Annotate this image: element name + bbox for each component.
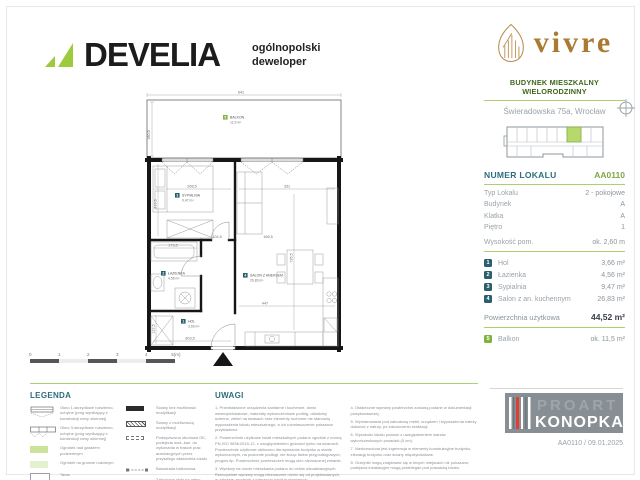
wall-modifiable-icon [126, 420, 152, 428]
label-lazienka: 2 ŁAZIENKA 4,56 m² [161, 271, 186, 280]
room-row: 3 Sypialnia 9,47 m² [484, 283, 625, 291]
svg-text:1: 1 [182, 320, 184, 324]
legend-item: Podwyższona obudowa GK, podejścia wod.-k… [126, 435, 212, 462]
note-item: 7. Niedozwolona jest ingerencja w elemen… [351, 446, 479, 457]
key-plan [503, 122, 607, 162]
dim-bedroom-width: 268,5 [187, 184, 197, 188]
legend-item: Taras [30, 472, 116, 480]
balcony-outline [147, 100, 341, 158]
green-divider [484, 100, 625, 101]
room-row: 4 Salon z an. kuchennym 26,83 m² [484, 295, 625, 303]
legend-column-left: Okno 1-skrzydłowe rozwierno-uchylne (pró… [30, 405, 116, 480]
proart-konopka-stamp: PROART KONOPKA [505, 393, 623, 433]
legend-item: Ściany z możliwością modyfikacji [126, 420, 212, 431]
label-balkon: 5 BALKON 11,5 m² [223, 115, 245, 124]
room-row: 2 Łazienka 4,56 m² [484, 271, 625, 279]
notes-column-1: 1. Przedstawione urządzenia sanitarne i … [215, 405, 343, 480]
note-item: 5. Wymiarowania pod zabudowę mebli, urzą… [351, 419, 479, 430]
address: Świeradowska 75a, Wrocław [484, 107, 625, 116]
svg-text:26,83 m²: 26,83 m² [250, 278, 264, 282]
garden-over-garage-swatch [30, 445, 56, 453]
room-number-badge: 4 [484, 295, 492, 303]
green-divider [484, 327, 625, 328]
tagline-line2: deweloper [252, 56, 320, 70]
balcony-number-badge: 5 [484, 335, 492, 343]
note-item: 8. Grzejniki mogą znajdować się w innych… [351, 460, 479, 471]
balustrade-icon [126, 466, 152, 473]
svg-text:SYPIALNIA: SYPIALNIA [182, 194, 201, 198]
green-divider [484, 184, 625, 185]
notes-column-2: 4. Ostateczne wymiary powierzchni zostan… [351, 405, 479, 480]
stamp-bottom-text: KONOPKA [535, 414, 623, 431]
legend-item: Zabudowa płyty na pełną wysokość [126, 477, 212, 480]
legend-item: Okno 3-skrzydłowe rozwierno-uchylne (pró… [30, 425, 116, 441]
stamp-logo: PROART KONOPKA [505, 393, 623, 433]
svg-text:9,47 m²: 9,47 m² [182, 198, 194, 202]
dim-balcony-depth: 180,5 [147, 130, 151, 140]
attr-row: Budynek A [484, 201, 625, 208]
panel-divider [490, 388, 623, 389]
legend-item: Okno 1-skrzydłowe rozwierno-uchylne (pró… [30, 405, 116, 421]
legend-column-right: Ściany bez możliwości modyfikacji Ściany… [126, 405, 212, 480]
attr-row: Piętro 1 [484, 224, 625, 231]
vivre-logo: vivre [484, 14, 625, 72]
dim-salon-height: 735,5 [290, 253, 294, 263]
floor-plan: 641 180,5 268,5 319,5 331 104,5 166,5 17… [105, 88, 355, 393]
svg-text:BALKON: BALKON [230, 116, 245, 120]
scale-tick: 4 [145, 352, 148, 357]
svg-text:2: 2 [162, 272, 164, 276]
dim-bedroom-height: 319,5 [154, 199, 158, 209]
svg-text:SALON Z ANEKSEM: SALON Z ANEKSEM [250, 274, 283, 278]
tagline-line1: ogólnopolski [252, 42, 320, 56]
interior-walls [149, 160, 235, 313]
dim-mid-left: 104,5 [212, 235, 222, 239]
develia-logo-icon [44, 41, 74, 69]
full-height-panel-icon [126, 477, 152, 480]
dim-mid-right: 166,5 [263, 235, 273, 239]
developer-tagline: ogólnopolski deweloper [252, 42, 320, 70]
vivre-wordmark: vivre [534, 26, 613, 60]
svg-text:ŁAZIENKA: ŁAZIENKA [168, 272, 186, 276]
attr-row: Klatka A [484, 213, 625, 220]
dimensions: 641 180,5 268,5 319,5 331 104,5 166,5 17… [147, 91, 341, 344]
dim-bath-width: 173,5 [168, 244, 178, 248]
svg-text:3: 3 [176, 194, 178, 198]
compass-icon [616, 98, 636, 118]
scale-tick: 1 [58, 352, 61, 357]
notes-section: UWAGI 1. Przedstawione urządzenia sanita… [215, 391, 478, 480]
attr-row: Typ Lokalu 2 - pokojowe [484, 190, 625, 197]
legend-item: Balustrada balkonowa [126, 466, 212, 473]
footer-divider [30, 383, 478, 384]
dim-salon-inner: 447 [262, 301, 268, 305]
floorplan-sheet: DEVELIA ogólnopolski deweloper [0, 0, 640, 480]
legend-section: LEGENDA Okno 1-skrzydłowe rozwierno-uchy… [30, 391, 212, 480]
window-single-icon [30, 405, 56, 417]
dim-balcony-width: 641 [238, 91, 244, 95]
vivre-logo-icon [496, 21, 526, 65]
develia-wordmark: DEVELIA [84, 36, 220, 74]
svg-text:4,56 m²: 4,56 m² [168, 276, 180, 280]
room-row: 1 Hol 3,66 m² [484, 259, 625, 267]
legend-title: LEGENDA [30, 391, 212, 400]
unit-number-label: NUMER LOKALU [484, 170, 557, 180]
label-sypialnia: 3 SYPIALNIA 9,47 m² [175, 193, 201, 202]
note-item: 3. Wymiary na rzucie mieszkania podano d… [215, 466, 343, 480]
stamp-top-text: PROART [537, 397, 618, 414]
dim-hol-height: 122,5 [152, 324, 156, 334]
room-number-badge: 1 [484, 259, 492, 267]
dim-salon-width: 331 [284, 184, 290, 188]
scale-tick: 0 [29, 352, 32, 357]
scale-tick: 5(m) [171, 352, 180, 357]
entrance-marker [213, 352, 233, 366]
total-area-row: Powierzchnia użytkowa 44,52 m² [484, 312, 625, 322]
svg-text:11,5 m²: 11,5 m² [230, 120, 242, 124]
balcony-row: 5 Balkon ok. 11,5 m² [484, 335, 625, 343]
green-divider [484, 251, 625, 252]
scale-bar: 0 1 2 3 4 5(m) [30, 352, 180, 366]
note-item: 4. Ostateczne wymiary powierzchni zostan… [351, 405, 479, 416]
room-number-badge: 2 [484, 271, 492, 279]
unit-number-value: AA0110 [594, 170, 625, 180]
terrace-swatch [30, 472, 56, 480]
scale-tick: 3 [116, 352, 119, 357]
wall-fixed-icon [126, 405, 152, 411]
legend-item: Ogródek na gruncie rodzimym [30, 460, 116, 468]
room-number-badge: 3 [484, 283, 492, 291]
note-item: 2. Powierzchnie użytkowe lokali mieszkal… [215, 435, 343, 463]
legend-item: Ściany bez możliwości modyfikacji [126, 405, 212, 416]
gk-enclosure-icon [126, 435, 152, 441]
svg-text:5: 5 [224, 116, 226, 120]
svg-text:HOL: HOL [188, 320, 195, 324]
svg-text:3,66 m²: 3,66 m² [188, 324, 200, 328]
info-panel: vivre BUDYNEK MIESZKALNY WIELORODZINNY Ś… [484, 14, 625, 343]
window-triple-icon [30, 425, 56, 437]
document-id: AA0110 / 09.01.2025 [484, 440, 623, 447]
dim-hol-width: 303,5 [185, 336, 195, 340]
developer-logo: DEVELIA [44, 36, 220, 74]
building-type: BUDYNEK MIESZKALNY WIELORODZINNY [484, 78, 625, 96]
scale-bar-segments [30, 359, 175, 363]
height-row: Wysokość pom. ok. 2,60 m [484, 239, 625, 246]
walls [147, 158, 341, 350]
garden-native-swatch [30, 460, 56, 468]
note-item: 1. Przedstawione urządzenia sanitarne i … [215, 405, 343, 433]
legend-item: Ogródek nad garażem podziemnym [30, 445, 116, 456]
label-hol: 1 HOL 3,66 m² [181, 319, 200, 328]
notes-title: UWAGI [215, 391, 478, 400]
note-item: 6. Wysokość lokalu podano z uwzględnieni… [351, 432, 479, 443]
highlighted-unit [567, 127, 581, 142]
scale-tick: 2 [87, 352, 90, 357]
svg-text:4: 4 [244, 274, 246, 278]
unit-number-row: NUMER LOKALU AA0110 [484, 170, 625, 180]
